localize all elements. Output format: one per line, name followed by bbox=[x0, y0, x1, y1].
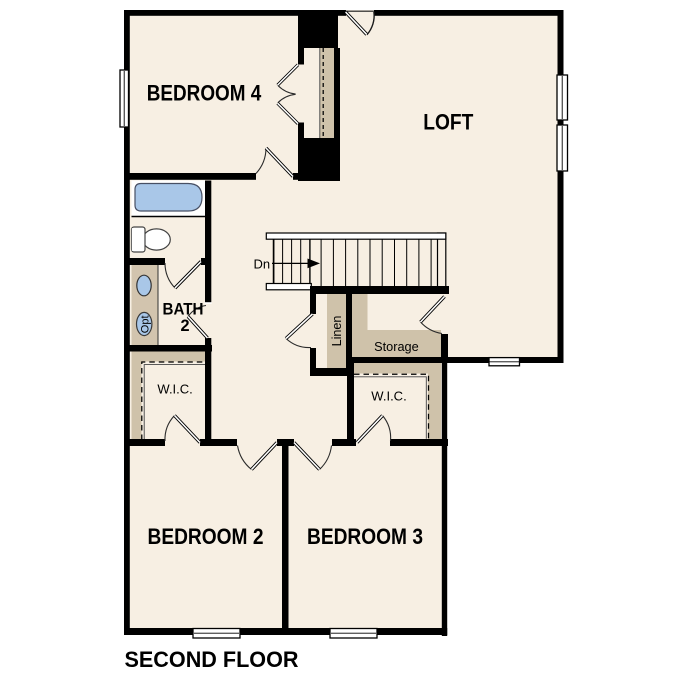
svg-text:BEDROOM 4: BEDROOM 4 bbox=[147, 80, 262, 105]
svg-text:Dn: Dn bbox=[254, 256, 271, 271]
svg-text:W.I.C.: W.I.C. bbox=[371, 388, 406, 403]
svg-text:Linen: Linen bbox=[329, 316, 344, 347]
svg-text:Storage: Storage bbox=[374, 339, 419, 354]
svg-text:BATH: BATH bbox=[163, 300, 204, 318]
svg-text:SECOND FLOOR: SECOND FLOOR bbox=[125, 647, 299, 672]
svg-text:LOFT: LOFT bbox=[423, 110, 473, 135]
svg-text:BEDROOM 2: BEDROOM 2 bbox=[148, 524, 264, 549]
svg-text:Opt: Opt bbox=[140, 315, 152, 333]
svg-text:W.I.C.: W.I.C. bbox=[157, 381, 192, 396]
svg-text:BEDROOM 3: BEDROOM 3 bbox=[307, 524, 423, 549]
svg-text:2: 2 bbox=[180, 317, 189, 335]
